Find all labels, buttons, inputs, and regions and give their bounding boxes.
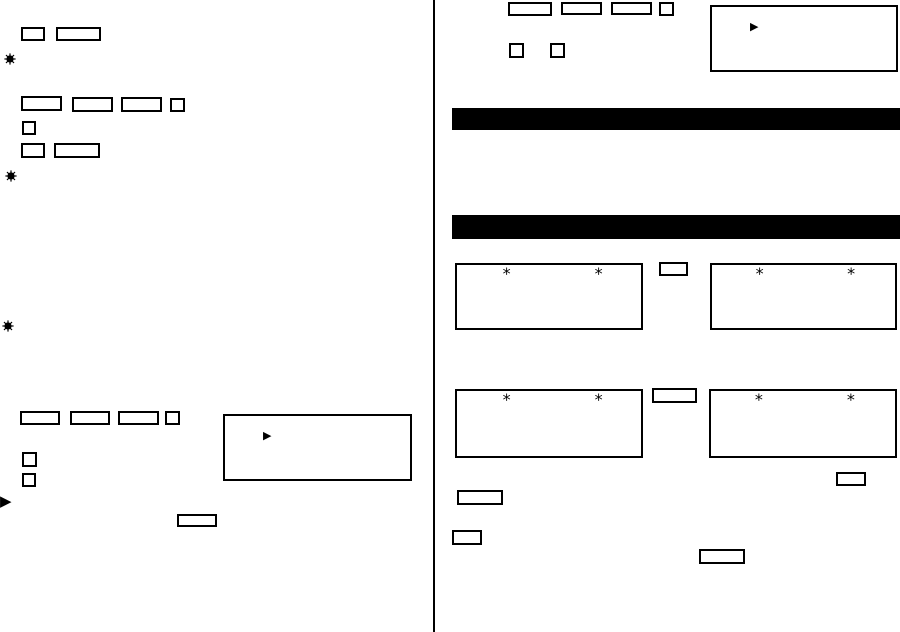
section-heading-bar: [452, 108, 900, 130]
key-outline: [611, 2, 652, 15]
asterisk-mark: *: [595, 391, 603, 409]
section-heading-bar: [452, 215, 900, 239]
key-outline: [54, 143, 100, 158]
asterisk-mark: *: [503, 391, 511, 409]
key-outline: [22, 121, 36, 135]
key-outline: [170, 98, 185, 112]
asterisk-mark: *: [595, 265, 603, 283]
key-outline: [22, 452, 37, 467]
key-outline: [561, 2, 602, 15]
key-outline: [121, 97, 162, 112]
key-outline: [118, 411, 159, 425]
key-outline: [836, 472, 866, 486]
key-outline: [457, 490, 503, 505]
key-outline: [509, 43, 524, 58]
asterisk-mark: *: [847, 391, 855, 409]
key-outline: [550, 43, 565, 58]
asterisk-mark: *: [503, 265, 511, 283]
play-icon: ▶: [750, 21, 758, 32]
starburst-icon: [4, 53, 16, 65]
key-outline: [177, 514, 217, 527]
column-divider: [433, 0, 435, 632]
key-outline: [22, 473, 36, 487]
asterisk-mark: *: [847, 265, 855, 283]
key-outline: [20, 411, 60, 425]
key-outline: [21, 27, 45, 41]
key-outline: [652, 388, 697, 403]
display-box: * *: [455, 389, 643, 458]
key-outline: [508, 2, 552, 16]
starburst-icon: [2, 320, 14, 332]
key-outline: [452, 530, 482, 545]
margin-play-icon: ▶: [0, 494, 12, 508]
callout-box: ▶: [710, 5, 898, 72]
key-outline: [699, 549, 745, 564]
play-icon: ▶: [263, 430, 271, 441]
starburst-icon: [5, 170, 17, 182]
key-outline: [56, 27, 101, 41]
display-box: * *: [710, 263, 897, 330]
scanned-manual-page: ▶ ▶ ▶ * * * * * * * *: [0, 0, 900, 632]
key-outline: [659, 262, 688, 276]
asterisk-mark: *: [755, 391, 763, 409]
display-box: * *: [709, 389, 897, 458]
asterisk-mark: *: [756, 265, 764, 283]
key-outline: [659, 2, 674, 16]
key-outline: [70, 411, 110, 425]
key-outline: [72, 97, 113, 112]
key-outline: [21, 96, 62, 111]
key-outline: [165, 411, 180, 425]
display-box: * *: [455, 263, 643, 330]
callout-box: ▶: [223, 414, 412, 481]
key-outline: [21, 143, 45, 158]
